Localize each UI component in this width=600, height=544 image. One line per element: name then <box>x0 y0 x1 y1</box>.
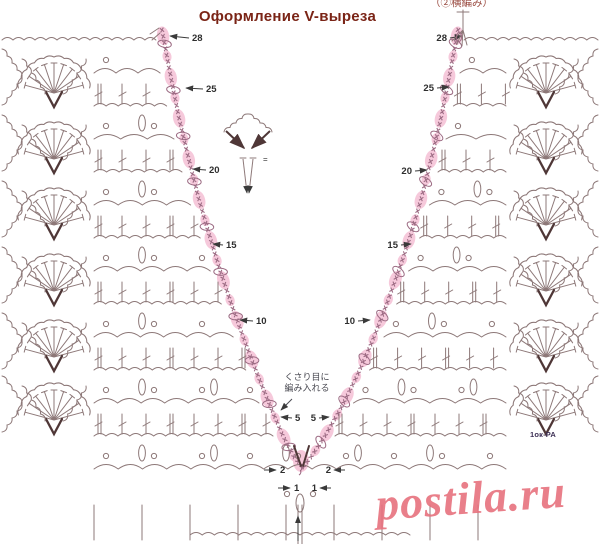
row-number-label: 20 <box>401 166 412 177</box>
row-number-label: 15 <box>387 240 398 251</box>
page-title: Оформление V-выреза <box>0 8 575 25</box>
row-number-label: 10 <box>344 316 355 327</box>
neckline-annotation: くさり目に 編み入れる <box>276 372 338 394</box>
fan-column-right <box>510 49 598 434</box>
row-number-label: 2 <box>280 465 285 476</box>
row-number-label: 25 <box>423 83 434 94</box>
inset-symbol: = <box>224 114 272 193</box>
row-number-label: 15 <box>226 240 237 251</box>
row-number-label: 25 <box>206 84 217 95</box>
top-right-annotation: （②横編み） <box>430 0 493 10</box>
crochet-chart-svg: 28252015105212825201510512= <box>0 0 600 544</box>
pattern-size-label: 1ок-РА <box>530 430 556 439</box>
row-number-label: 28 <box>436 33 447 44</box>
row-number-label: 5 <box>295 413 301 424</box>
neckline-annotation-line1: くさり目に <box>276 372 338 383</box>
row-number-label: 20 <box>209 165 220 176</box>
row-number-label: 1 <box>294 483 300 494</box>
neckline-annotation-line2: 編み入れる <box>276 383 338 394</box>
row-number-label: 10 <box>256 316 267 327</box>
row-number-label: 5 <box>311 413 317 424</box>
neckline-edging <box>157 28 463 475</box>
row-number-label: 1 <box>312 483 318 494</box>
row-number-label: 2 <box>326 465 331 476</box>
fan-column-left <box>2 49 90 434</box>
neckline-highlight <box>155 25 464 472</box>
equals-sign: = <box>263 155 268 164</box>
row-number-label: 28 <box>192 33 203 44</box>
crochet-diagram-page: 28252015105212825201510512= Оформление V… <box>0 0 600 544</box>
